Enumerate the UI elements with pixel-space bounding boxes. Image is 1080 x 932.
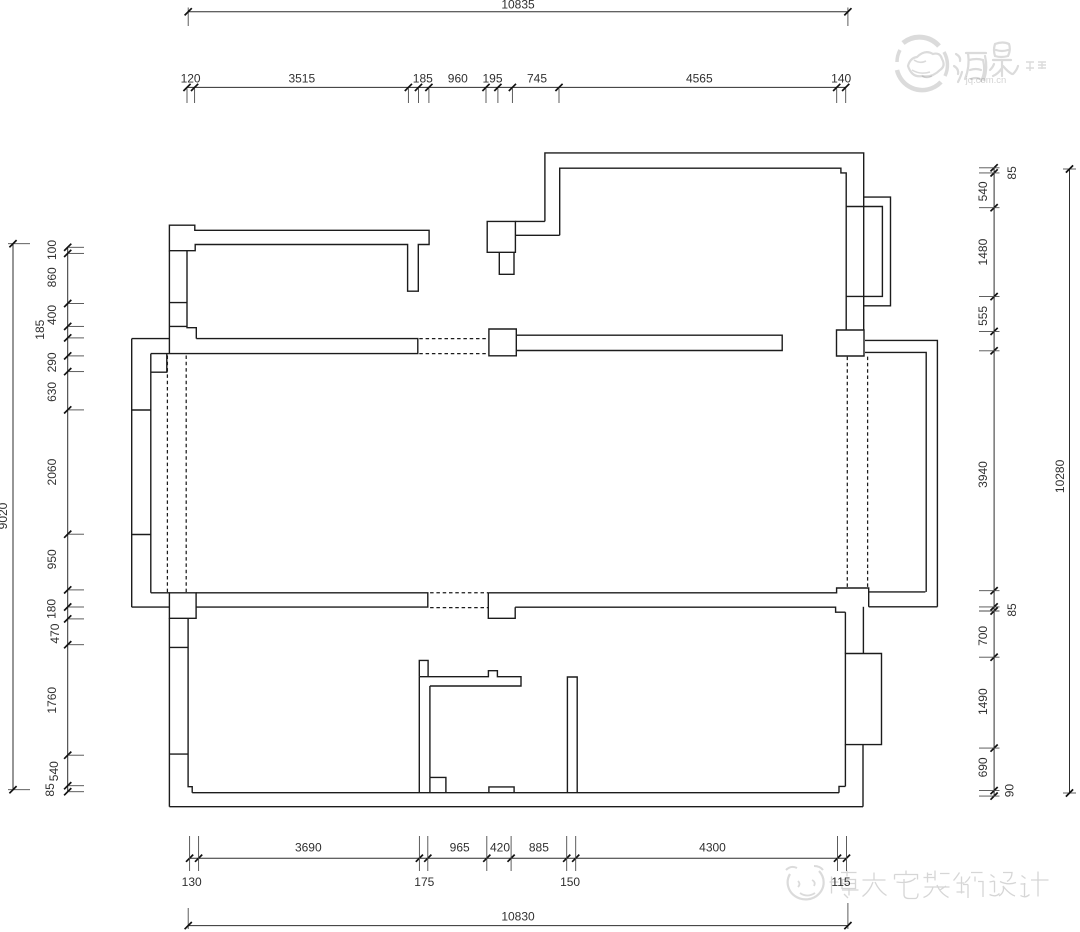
svg-text:130: 130 (182, 875, 202, 889)
svg-text:1760: 1760 (45, 687, 59, 714)
svg-text:470: 470 (48, 623, 62, 643)
svg-text:630: 630 (45, 382, 59, 402)
svg-text:950: 950 (45, 549, 59, 569)
svg-text:195: 195 (482, 72, 502, 86)
svg-text:3940: 3940 (976, 461, 990, 488)
svg-text:690: 690 (976, 757, 990, 777)
svg-text:745: 745 (527, 72, 547, 86)
svg-text:140: 140 (831, 72, 851, 86)
svg-text:85: 85 (1005, 166, 1019, 180)
svg-text:4565: 4565 (686, 72, 713, 86)
svg-text:185: 185 (33, 319, 47, 339)
svg-text:860: 860 (45, 267, 59, 287)
svg-text:4300: 4300 (699, 841, 726, 855)
svg-text:150: 150 (560, 875, 580, 889)
svg-text:10830: 10830 (501, 910, 535, 924)
svg-text:700: 700 (976, 626, 990, 646)
svg-text:885: 885 (529, 841, 549, 855)
svg-text:3690: 3690 (295, 841, 322, 855)
svg-text:10280: 10280 (1053, 459, 1067, 493)
svg-text:3515: 3515 (288, 72, 315, 86)
svg-text:540: 540 (976, 181, 990, 201)
svg-text:180: 180 (45, 599, 59, 619)
svg-text:540: 540 (47, 761, 61, 781)
svg-text:10835: 10835 (501, 0, 535, 12)
svg-text:100: 100 (45, 240, 59, 260)
svg-text:420: 420 (490, 841, 510, 855)
svg-text:965: 965 (450, 841, 470, 855)
svg-text:400: 400 (45, 305, 59, 325)
svg-text:290: 290 (45, 352, 59, 372)
svg-text:90: 90 (1003, 784, 1017, 798)
svg-text:555: 555 (976, 306, 990, 326)
svg-text:120: 120 (181, 72, 201, 86)
svg-text:1480: 1480 (976, 238, 990, 265)
svg-text:85: 85 (1005, 603, 1019, 617)
svg-text:175: 175 (414, 875, 434, 889)
svg-text:85: 85 (43, 783, 57, 797)
svg-text:960: 960 (448, 72, 468, 86)
svg-text:9020: 9020 (0, 502, 10, 529)
svg-text:jq.com.cn: jq.com.cn (965, 75, 1007, 86)
svg-text:2060: 2060 (45, 458, 59, 485)
svg-text:115: 115 (831, 875, 850, 889)
svg-text:185: 185 (413, 72, 433, 86)
svg-text:1490: 1490 (976, 688, 990, 715)
